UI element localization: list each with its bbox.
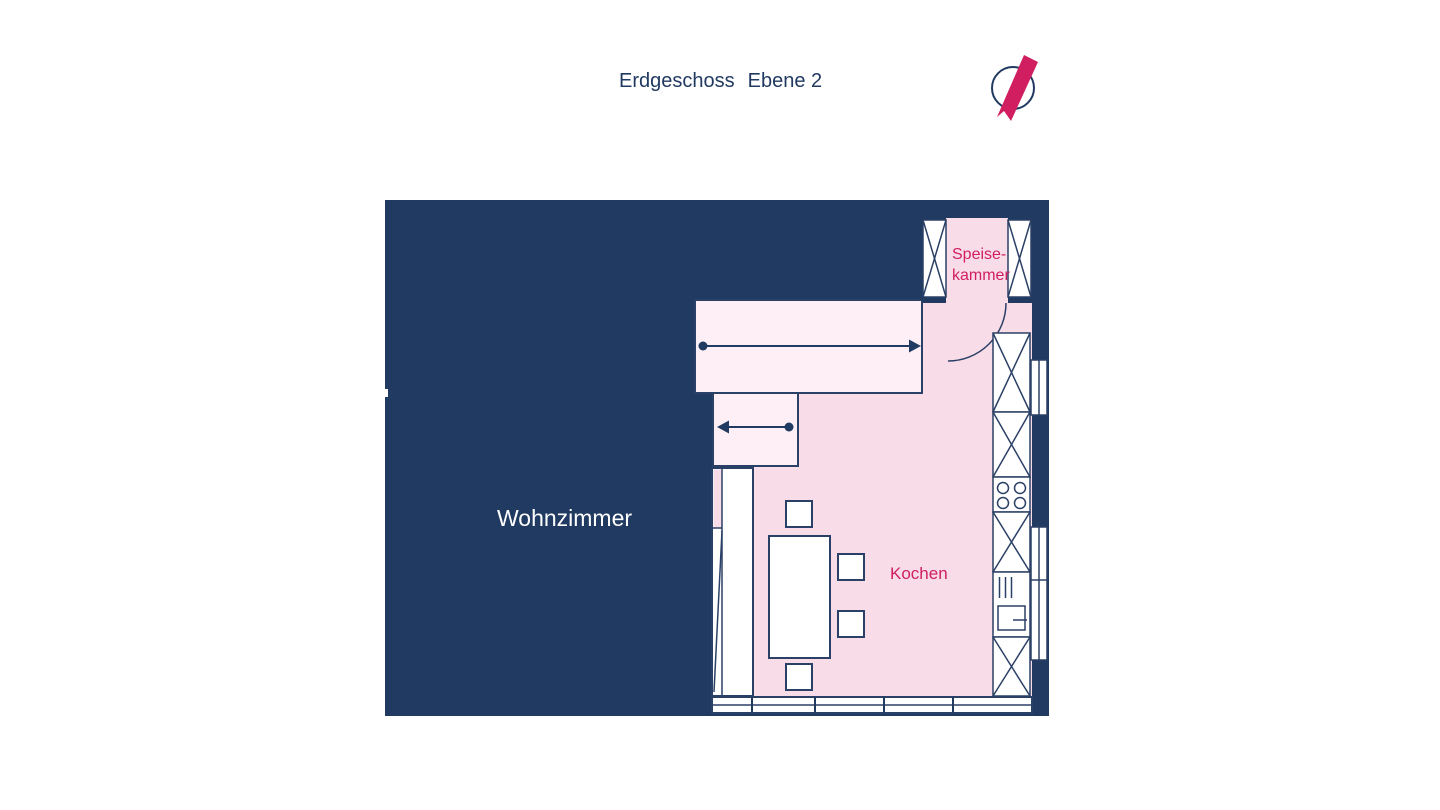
kitchen-label: Kochen: [890, 564, 948, 583]
sink-unit: [993, 572, 1030, 637]
pantry-cabinet-right: [1008, 220, 1031, 297]
burner-icon: [998, 483, 1009, 494]
pantry-cabinet-left: [923, 220, 946, 297]
compass-needle-icon: [997, 55, 1038, 121]
tall-cabinet-strip: [712, 468, 753, 696]
title-floor: Erdgeschoss: [619, 70, 735, 93]
window-right-upper: [1031, 360, 1047, 415]
window-right-lower: [1031, 527, 1047, 660]
burner-icon: [1015, 498, 1026, 509]
kitchen-cabinet-2: [993, 412, 1030, 477]
left-wall-notch: [385, 389, 388, 397]
sliding-door-zone-lower: [713, 393, 798, 466]
page-title: Erdgeschoss Ebene 2: [619, 70, 822, 93]
chair-top: [786, 501, 812, 527]
stove: [993, 477, 1030, 512]
burner-icon: [998, 498, 1009, 509]
chair-right-upper: [838, 554, 864, 580]
burner-icon: [1015, 483, 1026, 494]
pantry-label-line1: Speise-: [952, 246, 1006, 263]
pantry-label-line2: kammer: [952, 267, 1010, 284]
window-bottom-band: [712, 697, 1032, 713]
living-room-label: Wohnzimmer: [497, 505, 632, 531]
title-level: Ebene 2: [748, 70, 823, 93]
kitchen-cabinet-1: [993, 333, 1030, 412]
kitchen-cabinet-3: [993, 512, 1030, 572]
sliding-door-zone-upper: [695, 300, 922, 393]
chair-bottom: [786, 664, 812, 690]
kitchen-cabinet-4: [993, 637, 1030, 696]
chair-right-lower: [838, 611, 864, 637]
floor-plan: Wohnzimmer Kochen Speise- kammer: [385, 200, 1049, 716]
north-arrow-icon: [975, 45, 1055, 130]
dining-table: [769, 536, 830, 658]
